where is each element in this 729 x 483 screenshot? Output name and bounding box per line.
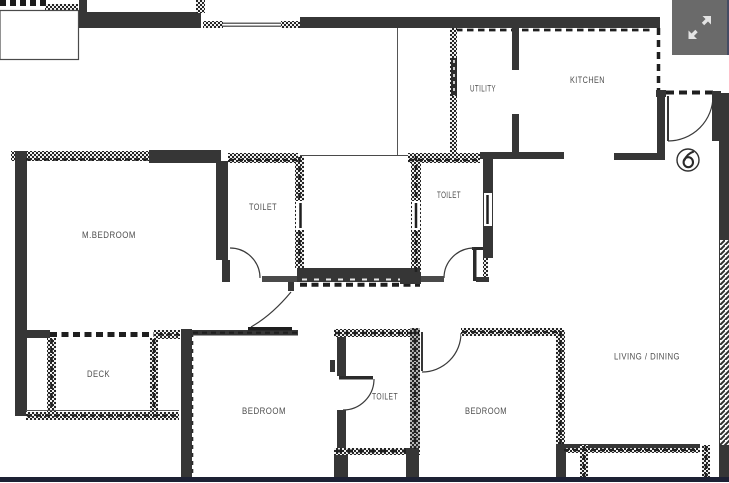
svg-text:LIVING / DINING: LIVING / DINING — [614, 352, 680, 363]
svg-text:TOILET: TOILET — [372, 392, 398, 403]
svg-text:KITCHEN: KITCHEN — [570, 75, 605, 86]
svg-text:TOILET: TOILET — [249, 202, 277, 213]
svg-text:BEDROOM: BEDROOM — [242, 406, 286, 417]
svg-text:M.BEDROOM: M.BEDROOM — [82, 230, 136, 241]
svg-text:UTILITY: UTILITY — [470, 84, 496, 95]
svg-text:DECK: DECK — [87, 369, 110, 380]
svg-text:BEDROOM: BEDROOM — [465, 406, 507, 417]
svg-text:TOILET: TOILET — [437, 190, 461, 201]
